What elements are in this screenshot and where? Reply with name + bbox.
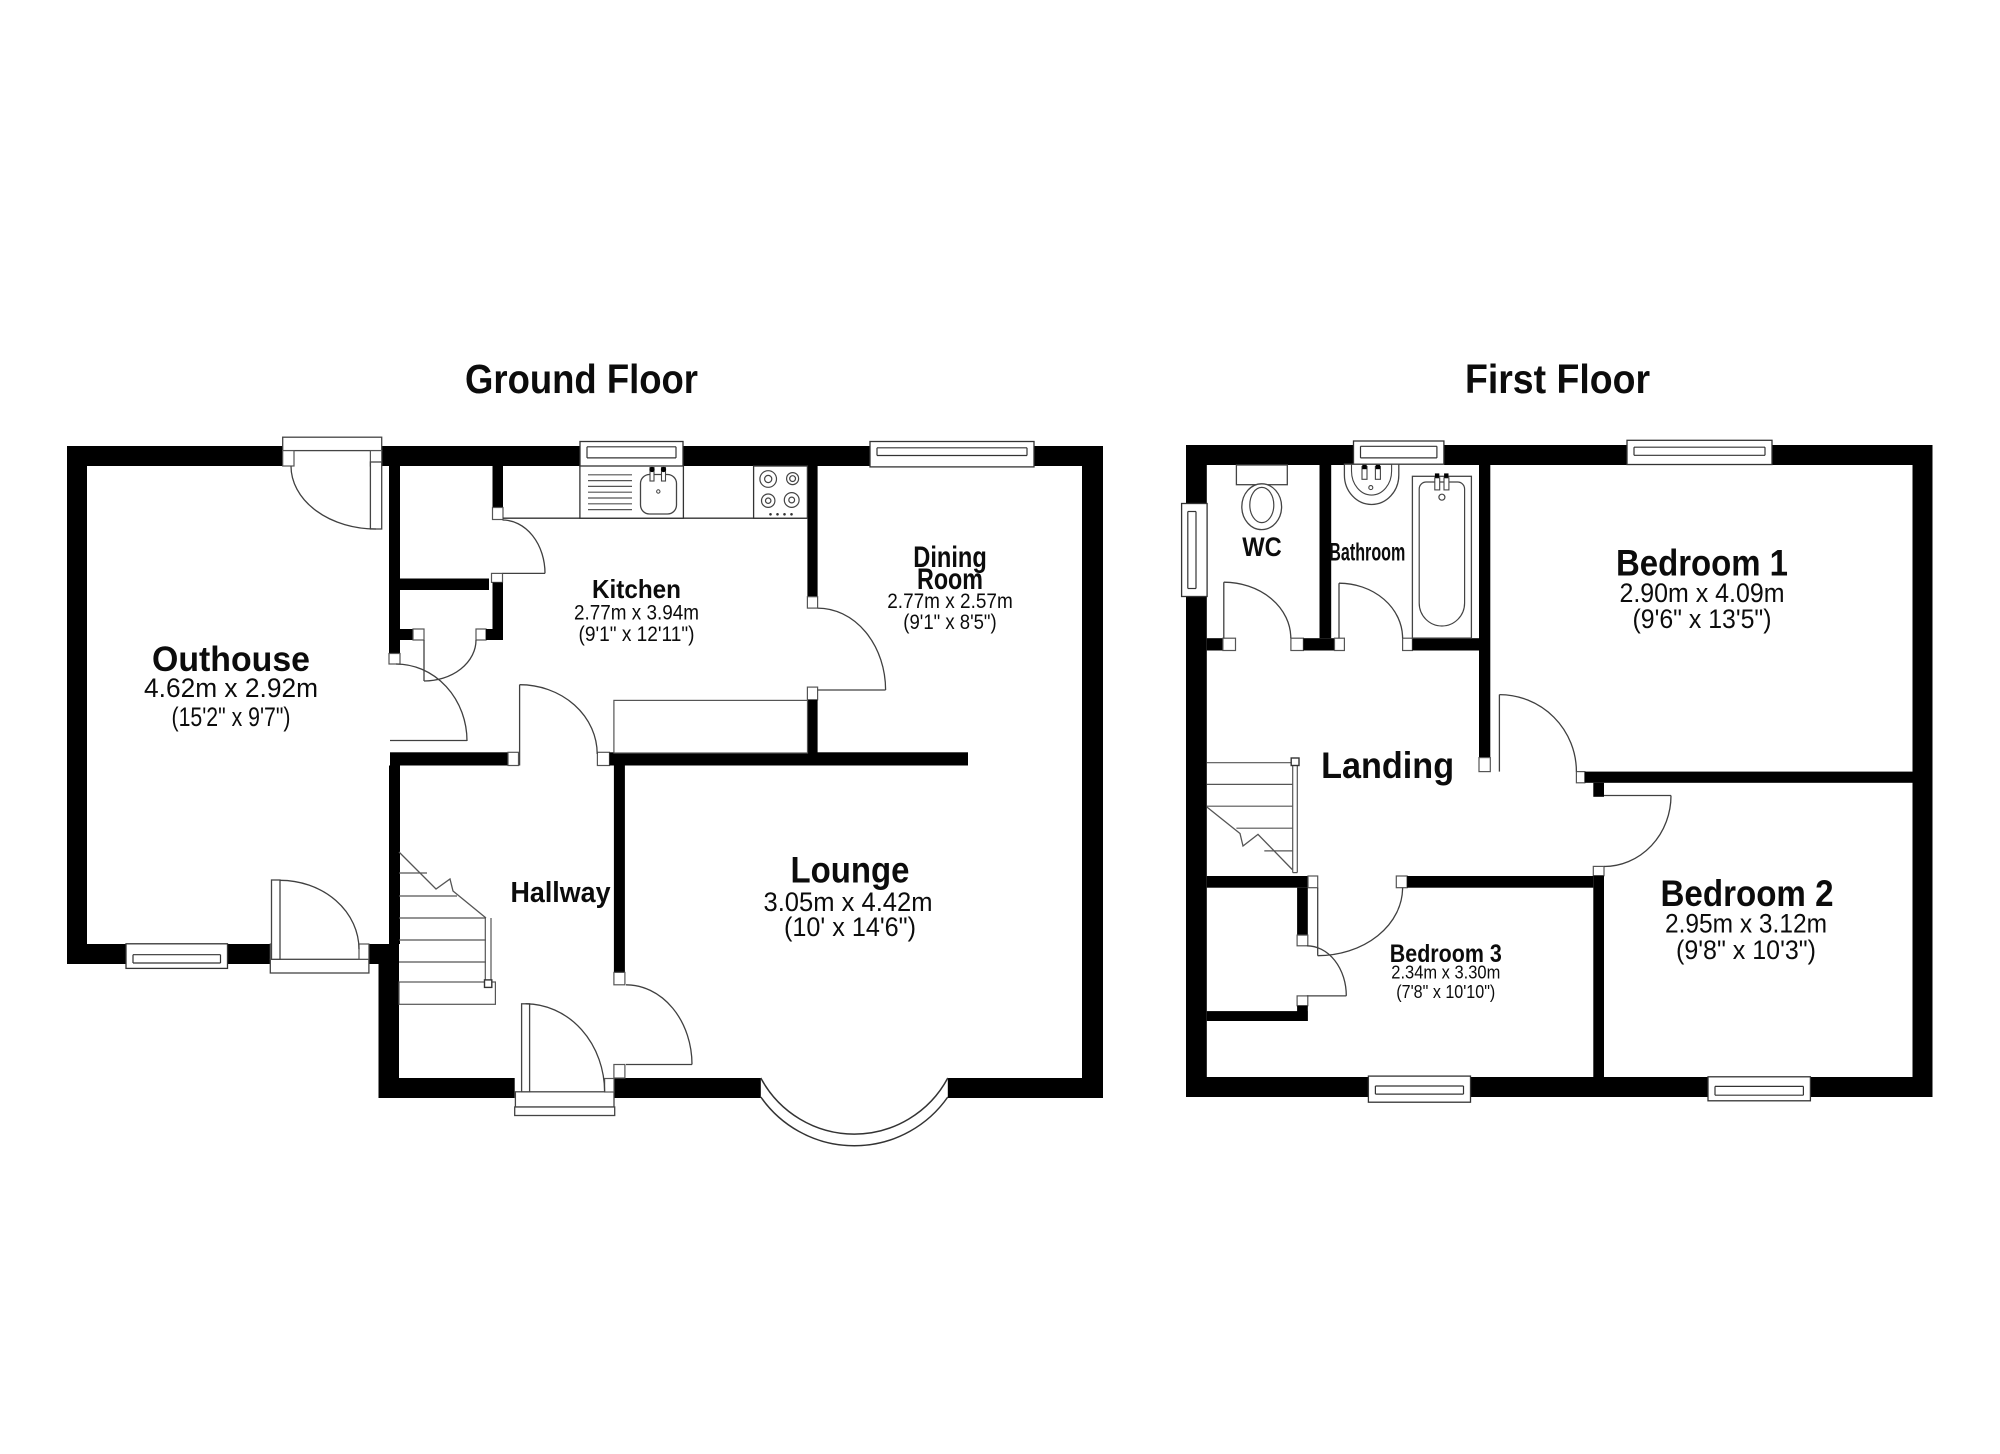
svg-text:Ground Floor: Ground Floor	[465, 356, 698, 402]
svg-text:Bathroom: Bathroom	[1329, 539, 1405, 567]
svg-text:2.34m x 3.30m: 2.34m x 3.30m	[1391, 963, 1500, 983]
svg-text:WC: WC	[1242, 532, 1282, 562]
svg-text:Kitchen: Kitchen	[592, 574, 681, 604]
svg-text:(9'6" x 13'5"): (9'6" x 13'5")	[1633, 604, 1772, 634]
svg-text:2.95m x 3.12m: 2.95m x 3.12m	[1665, 909, 1827, 939]
svg-text:2.77m x 2.57m: 2.77m x 2.57m	[887, 590, 1013, 613]
svg-text:(9'1" x 8'5"): (9'1" x 8'5")	[903, 611, 996, 634]
svg-text:First Floor: First Floor	[1465, 356, 1650, 402]
svg-text:2.77m x 3.94m: 2.77m x 3.94m	[574, 602, 699, 625]
svg-text:4.62m x 2.92m: 4.62m x 2.92m	[144, 673, 318, 703]
svg-text:Landing: Landing	[1321, 745, 1454, 786]
svg-text:(9'1" x 12'11"): (9'1" x 12'11")	[579, 623, 695, 646]
svg-text:Lounge: Lounge	[791, 849, 910, 890]
svg-text:Hallway: Hallway	[511, 877, 611, 909]
svg-text:(15'2" x 9'7"): (15'2" x 9'7")	[172, 702, 291, 732]
svg-text:(9'8" x 10'3"): (9'8" x 10'3")	[1676, 935, 1816, 965]
svg-text:(10' x 14'6"): (10' x 14'6")	[784, 912, 916, 942]
svg-text:(7'8" x 10'10"): (7'8" x 10'10")	[1396, 982, 1495, 1002]
